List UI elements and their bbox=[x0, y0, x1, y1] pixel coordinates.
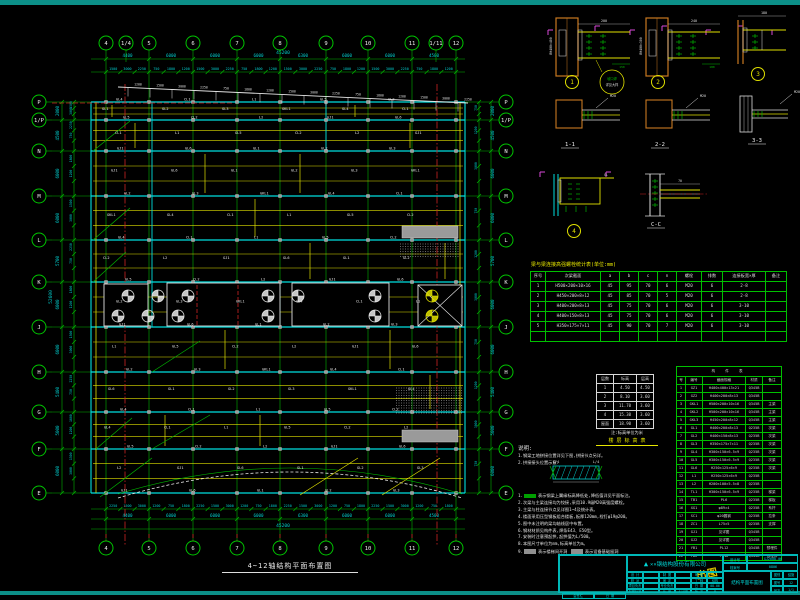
column-node bbox=[411, 119, 414, 122]
beam-label: GKL1 bbox=[411, 168, 420, 172]
dim-text: 1200 bbox=[69, 427, 73, 435]
column-node bbox=[279, 150, 282, 153]
axis-bubble-label: N bbox=[37, 149, 40, 155]
cad-shape bbox=[596, 98, 608, 108]
member-table-cell: GJ1 bbox=[686, 529, 703, 537]
bolt-table-cell: 45 bbox=[601, 312, 620, 322]
axis-bubble-label: 10 bbox=[365, 546, 372, 552]
dim-text: 2250 bbox=[69, 121, 73, 129]
member-table-cell: 6 bbox=[677, 425, 686, 433]
dim-text: 2250 bbox=[314, 67, 322, 71]
signature-cell: 会签栏 bbox=[562, 593, 594, 599]
beam-label: GL6 bbox=[399, 445, 406, 449]
stiffener bbox=[559, 30, 566, 56]
level-table-cell: 3.60 bbox=[637, 393, 654, 402]
titleblock-grid-cell: 比 例 bbox=[659, 589, 675, 594]
dim-text: 3000 bbox=[123, 67, 131, 71]
dim-text: 1800 bbox=[445, 504, 453, 508]
column-node bbox=[148, 492, 151, 495]
dim-text: 5400 bbox=[55, 386, 60, 397]
beam-label: GL2 bbox=[403, 256, 410, 260]
level-table-cell: 3.60 bbox=[637, 420, 654, 429]
dim-text: 1500 bbox=[299, 504, 307, 508]
member-table-cell bbox=[763, 473, 782, 481]
bolt-table-cell: 5 bbox=[531, 322, 546, 332]
note-item: 1.表示钢梁上翼缘标高降低处,降低值详见平面标注。 bbox=[518, 493, 682, 500]
dim-text: 5700 bbox=[55, 255, 60, 266]
dim-text: 6000 bbox=[210, 513, 221, 518]
member-table-cell: φ20圆钢 bbox=[703, 513, 746, 521]
axis-bubble-label: 9 bbox=[324, 546, 327, 552]
bolt-table-cell: 连接板宽×厚 bbox=[723, 272, 766, 282]
beam-label: GL5 bbox=[284, 426, 291, 430]
legend-green-box bbox=[524, 494, 536, 498]
roof-dim: 2250 bbox=[464, 98, 472, 102]
beam-label: GL4 bbox=[328, 192, 335, 196]
member-table-cell bbox=[763, 481, 782, 489]
beam-label: L1 bbox=[256, 408, 260, 412]
dim-text: 1200 bbox=[445, 67, 453, 71]
level-table-cell: 4.50 bbox=[637, 384, 654, 393]
beam-label: GL3 bbox=[417, 466, 424, 470]
beam-label: GL2 bbox=[323, 323, 330, 327]
section-label: 1-1 bbox=[565, 142, 575, 148]
dim-text: 6000 bbox=[210, 53, 221, 58]
roof-dim: 750 bbox=[355, 93, 361, 97]
beam-label: GL5 bbox=[347, 213, 354, 217]
sheet-meta-label: 图号 bbox=[771, 579, 783, 587]
column-node bbox=[105, 119, 108, 122]
member-table-cell: Q235B bbox=[746, 521, 763, 529]
bolt-table-cell bbox=[766, 312, 787, 322]
column-node bbox=[411, 281, 414, 284]
member-table-cell: Q235B bbox=[746, 489, 763, 497]
dim-text: 750 bbox=[69, 258, 73, 264]
titleblock-grid-cell bbox=[643, 589, 659, 594]
member-table-cell: Q235B bbox=[746, 425, 763, 433]
level-table-cell: 8.10 bbox=[614, 393, 637, 402]
member-table-cell: 次梁 bbox=[763, 425, 782, 433]
dim-text: 2250 bbox=[371, 504, 379, 508]
beam-label: GL4 bbox=[120, 408, 127, 412]
bolt-table-cell: 排数 bbox=[702, 272, 723, 282]
column-node bbox=[367, 411, 370, 414]
circle-cross-symbol bbox=[158, 296, 164, 302]
beam-label: GL4 bbox=[104, 426, 111, 430]
bolt-table-cell: 2-8 bbox=[723, 282, 766, 292]
cad-shape bbox=[686, 98, 698, 108]
column-node bbox=[105, 195, 108, 198]
dim-text: 3000 bbox=[474, 420, 478, 428]
beam-label: L1 bbox=[175, 131, 179, 135]
column-node bbox=[148, 371, 151, 374]
dim-text: 6000 bbox=[166, 513, 177, 518]
dim-text: 750 bbox=[474, 339, 478, 345]
beam-label: GJ1 bbox=[329, 278, 336, 282]
legend-grey-box bbox=[524, 549, 536, 554]
detail-number-label: 2 bbox=[656, 79, 660, 86]
beam-label: CL2 bbox=[232, 344, 239, 348]
beam-label: GL2 bbox=[357, 466, 364, 470]
bolt-table-cell: 6 bbox=[702, 322, 723, 332]
sheet-meta-label: 图别 bbox=[771, 571, 783, 579]
column-node bbox=[411, 150, 414, 153]
column-node bbox=[236, 119, 239, 122]
beam-label: GL4 bbox=[296, 299, 303, 303]
brace bbox=[93, 252, 126, 282]
bolt-table-cell: 4 bbox=[531, 312, 546, 322]
dim-text: 6000 bbox=[342, 513, 353, 518]
column-node bbox=[148, 281, 151, 284]
dim-text: 3000 bbox=[69, 346, 73, 354]
member-table-cell: H400×400×13×21 bbox=[703, 385, 746, 393]
dim-text: 1800 bbox=[430, 67, 438, 71]
bolt-table-cell: 序号 bbox=[531, 272, 546, 282]
roof-dim: 750 bbox=[223, 86, 229, 90]
dim-text: 750 bbox=[474, 461, 478, 467]
dim-text: 1200 bbox=[357, 67, 365, 71]
axis-bubble-label: 1/11 bbox=[429, 41, 442, 47]
beam-label: GL6 bbox=[395, 116, 402, 120]
member-table-cell: 7 bbox=[677, 433, 686, 441]
beam-label: GJ1 bbox=[119, 323, 126, 327]
dim-text: 1800 bbox=[343, 67, 351, 71]
dim-text: 3000 bbox=[314, 504, 322, 508]
level-table-cell: 层数 bbox=[597, 375, 614, 384]
column-node bbox=[455, 448, 458, 451]
dim-text: 750 bbox=[344, 504, 350, 508]
member-table-cell: Q235B bbox=[746, 465, 763, 473]
beam-label: CL1 bbox=[356, 299, 363, 303]
stair-landing bbox=[402, 430, 458, 442]
dim-text: 750 bbox=[153, 67, 159, 71]
column-node bbox=[411, 239, 414, 242]
member-table-cell: Q235B bbox=[746, 513, 763, 521]
bolt-table-cell: 5 bbox=[658, 292, 677, 302]
dim-text: 750 bbox=[474, 105, 478, 111]
beam-label: CL2 bbox=[191, 116, 198, 120]
bolt-table-cell bbox=[702, 332, 723, 342]
member-table-cell: TB1 bbox=[686, 497, 703, 505]
member-table-cell: 3 bbox=[677, 401, 686, 409]
column-node bbox=[279, 195, 282, 198]
titleblock-grid-cell: 制图标准 bbox=[627, 589, 643, 594]
beam-label: L1 bbox=[112, 344, 116, 348]
dim-text: 2250 bbox=[138, 67, 146, 71]
dim-text: 1200 bbox=[269, 67, 277, 71]
member-table-cell: 材质 bbox=[746, 377, 763, 385]
column-node bbox=[279, 119, 282, 122]
dim-text: 6000 bbox=[55, 299, 60, 310]
beam-label: GKL1 bbox=[262, 368, 271, 372]
member-table-cell: Q345B bbox=[746, 545, 763, 553]
dim-text: 1800 bbox=[69, 155, 73, 163]
dim-text: 6000 bbox=[55, 168, 60, 179]
column-node bbox=[148, 150, 151, 153]
beam-label: GL2 bbox=[325, 489, 332, 493]
dim-text: 4500 bbox=[429, 513, 440, 518]
beam-label: GL4 bbox=[118, 236, 125, 240]
bolt-table-cell: 6 bbox=[658, 312, 677, 322]
beam-label: GKL1 bbox=[260, 192, 269, 196]
column-node bbox=[148, 195, 151, 198]
dim-text: 1200 bbox=[182, 67, 190, 71]
column-mark: BH400×300 bbox=[639, 37, 643, 54]
bolt-table-cell: 6 bbox=[702, 312, 723, 322]
beam-label: CL1 bbox=[188, 408, 195, 412]
column-node bbox=[411, 448, 414, 451]
bolt-table-cell bbox=[658, 332, 677, 342]
column-node bbox=[148, 411, 151, 414]
beam-label: L2 bbox=[163, 256, 167, 260]
beam-label: GL2 bbox=[116, 299, 123, 303]
bolt-table-cell bbox=[766, 282, 787, 292]
section-column bbox=[740, 96, 752, 132]
dim-text: 1200 bbox=[152, 504, 160, 508]
beam-label: GL4 bbox=[167, 213, 174, 217]
beam-label: GL5 bbox=[172, 344, 179, 348]
dim-text: 2000 bbox=[490, 105, 495, 116]
column-node bbox=[367, 492, 370, 495]
dim-text: 2250 bbox=[69, 375, 73, 383]
dim-text: 750 bbox=[69, 389, 73, 395]
dim-text: 3000 bbox=[386, 67, 394, 71]
cad-sheet: { "sheet": { "colors": {"band":"#0c8f88"… bbox=[0, 0, 800, 600]
detail-beam bbox=[560, 178, 600, 204]
member-table-cell: H300×150×6.5×9 bbox=[703, 489, 746, 497]
roof-dim: 3000 bbox=[178, 84, 186, 88]
beam-label: GL1 bbox=[102, 107, 109, 111]
column-node bbox=[236, 492, 239, 495]
dim-text: 750 bbox=[168, 504, 174, 508]
bolt-table-cell: 70 bbox=[639, 282, 658, 292]
member-table-cell: 次梁 bbox=[763, 449, 782, 457]
member-table-cell: Q235B bbox=[746, 505, 763, 513]
beam-label: GKL1 bbox=[282, 107, 291, 111]
beam-label: CL2 bbox=[295, 131, 302, 135]
dim-text: 750 bbox=[416, 67, 422, 71]
column-node bbox=[279, 448, 282, 451]
bolt-table-cell: 2-8 bbox=[723, 292, 766, 302]
dim-text: 750 bbox=[255, 504, 261, 508]
member-table-cell bbox=[763, 393, 782, 401]
member-table-cell: TL1 bbox=[686, 489, 703, 497]
member-table-cell: 拉条 bbox=[763, 513, 782, 521]
dim-text: 1800 bbox=[182, 504, 190, 508]
dim-text: 1500 bbox=[196, 67, 204, 71]
sheet-meta-value: 1/1 bbox=[783, 586, 798, 593]
level-table-cell: 4.50 bbox=[614, 384, 637, 393]
member-table: 构 件 表号编号截面规格材质备注1GZ1H400×400×13×21Q345B2… bbox=[676, 366, 782, 561]
beam-label: GL5 bbox=[235, 131, 242, 135]
dim-text: 4500 bbox=[429, 53, 440, 58]
roof-dim: 3000 bbox=[442, 97, 450, 101]
dim-text: 1800 bbox=[69, 414, 73, 422]
bolt-table-cell: 7 bbox=[658, 322, 677, 332]
dim-text: 3000 bbox=[401, 504, 409, 508]
dim-text: 4400 bbox=[122, 53, 133, 58]
beam-label: GJ1 bbox=[121, 489, 128, 493]
beam-label: GL6 bbox=[171, 168, 178, 172]
member-table-cell: 次梁 bbox=[763, 457, 782, 465]
level-table-cell: 15.30 bbox=[614, 411, 637, 420]
beam-label: GL2 bbox=[228, 387, 235, 391]
dim-text: 3000 bbox=[226, 504, 234, 508]
column-node bbox=[455, 281, 458, 284]
beam-label: GL3 bbox=[192, 192, 199, 196]
detail-dim: M20 bbox=[610, 94, 616, 98]
bolt-table-cell: 75 bbox=[620, 302, 639, 312]
beam-label: L1 bbox=[252, 98, 256, 102]
bolt-table-cell: 3-10 bbox=[723, 322, 766, 332]
bolt-table-cell bbox=[766, 292, 787, 302]
column-node bbox=[236, 150, 239, 153]
beam-label: GL5 bbox=[123, 116, 130, 120]
bolt-table-cell: a bbox=[601, 272, 620, 282]
dim-text: 6000 bbox=[490, 465, 495, 476]
member-table-cell: 备注 bbox=[763, 377, 782, 385]
cad-shape bbox=[596, 60, 602, 72]
beam-label: GL6 bbox=[189, 489, 196, 493]
floor-opening bbox=[292, 283, 389, 326]
bolt-table-cell bbox=[766, 322, 787, 332]
dim-text: 6000 bbox=[490, 299, 495, 310]
member-table-cell: GL4 bbox=[686, 449, 703, 457]
bolt-table-cell: M20 bbox=[677, 322, 702, 332]
member-table-cell: GL2 bbox=[686, 433, 703, 441]
notes-block: 说明:1.钢梁工地拼接位置详见下图,拼接节点另详。2.拼接接头位置示意:1.表示… bbox=[518, 444, 682, 555]
member-table-cell: 主梁 bbox=[763, 417, 782, 425]
dim-text: 2250 bbox=[226, 67, 234, 71]
member-table-cell: Q235B bbox=[746, 433, 763, 441]
beam-label: GKL1 bbox=[107, 213, 116, 217]
beam-label: L1 bbox=[287, 213, 291, 217]
detail-number-label: 1 bbox=[570, 79, 574, 86]
dim-text: 5700 bbox=[490, 255, 495, 266]
beam-label: CL2 bbox=[193, 278, 200, 282]
project-no-value: GJ2008-06 bbox=[747, 555, 798, 563]
beam-label: GL6 bbox=[187, 323, 194, 327]
dim-text: 5000 bbox=[55, 425, 60, 436]
column-node bbox=[236, 411, 239, 414]
callout-text: 详见大样 bbox=[606, 82, 620, 87]
note-item: 8.本图尺寸单位为mm,标高单位为m。 bbox=[518, 541, 682, 548]
dim-text: 6000 bbox=[490, 344, 495, 355]
bolt-table-cell: H400×150×8×13 bbox=[546, 312, 601, 322]
member-table-cell: GKL1 bbox=[686, 401, 703, 409]
dim-text: 750 bbox=[474, 208, 478, 214]
column-node bbox=[367, 239, 370, 242]
dim-text: 1800 bbox=[357, 504, 365, 508]
beam-label: CL1 bbox=[396, 192, 403, 196]
sheet-meta-value: 结施 bbox=[783, 571, 798, 579]
section-label: C-C bbox=[651, 222, 661, 228]
beam-label: GJ1 bbox=[223, 256, 230, 260]
dim-text: 5000 bbox=[490, 425, 495, 436]
bolt-table-cell: 45 bbox=[601, 282, 620, 292]
dim-text: 6300 bbox=[298, 53, 309, 58]
member-table-cell: H250×125×6×9 bbox=[703, 465, 746, 473]
dim-text: 3000 bbox=[69, 467, 73, 475]
column-node bbox=[325, 371, 328, 374]
sheet-meta-value: 12 bbox=[783, 579, 798, 587]
dim-text: 1500 bbox=[284, 67, 292, 71]
axis-bubble-label: 10 bbox=[365, 41, 372, 47]
bolt-table-cell: 2 bbox=[531, 292, 546, 302]
column-node bbox=[148, 239, 151, 242]
beam-label: GL5 bbox=[320, 98, 327, 102]
beam-label: GL3 bbox=[391, 323, 398, 327]
axis-bubble-label: 7 bbox=[235, 546, 238, 552]
beam-label: GL3 bbox=[389, 147, 396, 151]
member-table-cell bbox=[763, 385, 782, 393]
roof-dim: 1200 bbox=[134, 82, 142, 86]
brace bbox=[93, 121, 130, 151]
bolt-table-cell: 45 bbox=[601, 302, 620, 312]
member-table-cell: GL5 bbox=[686, 457, 703, 465]
detail-number-label: 3 bbox=[756, 71, 760, 78]
dim-text: 4500 bbox=[490, 130, 495, 141]
column-node bbox=[148, 448, 151, 451]
level-table-cell: 屋面 bbox=[597, 420, 614, 429]
sheet-meta-label: 张次 bbox=[771, 586, 783, 593]
titleblock-grid-cell: 版 次 bbox=[691, 589, 707, 594]
member-table-cell: H400×150×8×13 bbox=[703, 433, 746, 441]
detail-dim: 70 bbox=[678, 179, 682, 183]
dim-text: 6000 bbox=[253, 513, 264, 518]
axis-bubble-label: 6 bbox=[191, 41, 194, 47]
column-node bbox=[325, 448, 328, 451]
dim-text: 1200 bbox=[69, 301, 73, 309]
bolt-table-cell: H350×175×7×11 bbox=[546, 322, 601, 332]
member-table-cell: 编号 bbox=[686, 377, 703, 385]
beam-label: L2 bbox=[292, 344, 296, 348]
note-item: 4.楼面采用压型钢板组合楼板,板厚120mm,栓钉φ19@200。 bbox=[518, 514, 682, 521]
dim-text: 1200 bbox=[474, 126, 478, 134]
note-item: 2.次梁与主梁连接均为铰接,采用10.9级M20高强度螺栓。 bbox=[518, 500, 682, 507]
column-node bbox=[455, 119, 458, 122]
member-table-cell: 号 bbox=[677, 377, 686, 385]
dim-text: 1500 bbox=[211, 504, 219, 508]
beam-label: L1 bbox=[254, 236, 258, 240]
roof-dim: 1500 bbox=[156, 83, 164, 87]
bolt-table-cell: b bbox=[620, 272, 639, 282]
member-table-cell: Q235B bbox=[746, 481, 763, 489]
column-node bbox=[105, 281, 108, 284]
dim-text: 1800 bbox=[167, 67, 175, 71]
column-node bbox=[236, 239, 239, 242]
dim-text: 750 bbox=[241, 67, 247, 71]
member-table-cell: Q345B bbox=[746, 393, 763, 401]
bolt-table-cell: M20 bbox=[677, 292, 702, 302]
axis-bubble-label: 1/P bbox=[34, 118, 45, 124]
bolt-table-cell: 次梁截面 bbox=[546, 272, 601, 282]
dim-text: 1200 bbox=[329, 504, 337, 508]
column-node bbox=[236, 195, 239, 198]
dim-text: 5400 bbox=[490, 386, 495, 397]
axis-bubble-label: 12 bbox=[453, 546, 460, 552]
axis-bubble-label: 8 bbox=[278, 546, 281, 552]
bolt-table-cell: 95 bbox=[620, 282, 639, 292]
member-table-cell: L75×5 bbox=[703, 521, 746, 529]
axis-bubble-label: 1/P bbox=[501, 118, 512, 124]
titleblock-grid-cell: 1:150 bbox=[675, 589, 691, 594]
member-table-cell: GL1 bbox=[686, 425, 703, 433]
axis-bubble-label: F bbox=[504, 447, 507, 453]
beam-label: GL2 bbox=[124, 192, 131, 196]
bolt-table-cell: 90 bbox=[620, 322, 639, 332]
beam-label: L2 bbox=[355, 131, 359, 135]
